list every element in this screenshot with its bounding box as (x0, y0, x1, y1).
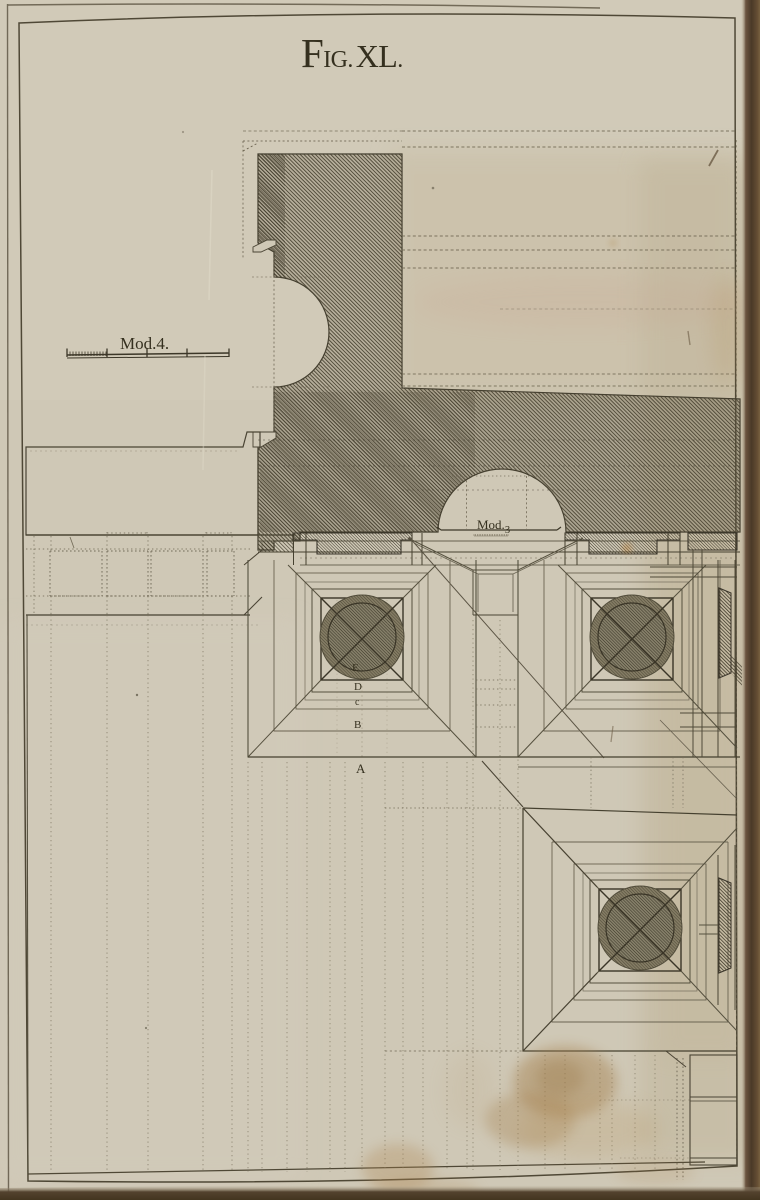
svg-text:D: D (354, 681, 362, 693)
svg-text:B: B (354, 719, 361, 731)
svg-text:E: E (352, 662, 359, 674)
svg-text:c: c (355, 697, 360, 708)
svg-text:A: A (356, 761, 366, 776)
svg-text:Mod.4.: Mod.4. (120, 334, 169, 353)
